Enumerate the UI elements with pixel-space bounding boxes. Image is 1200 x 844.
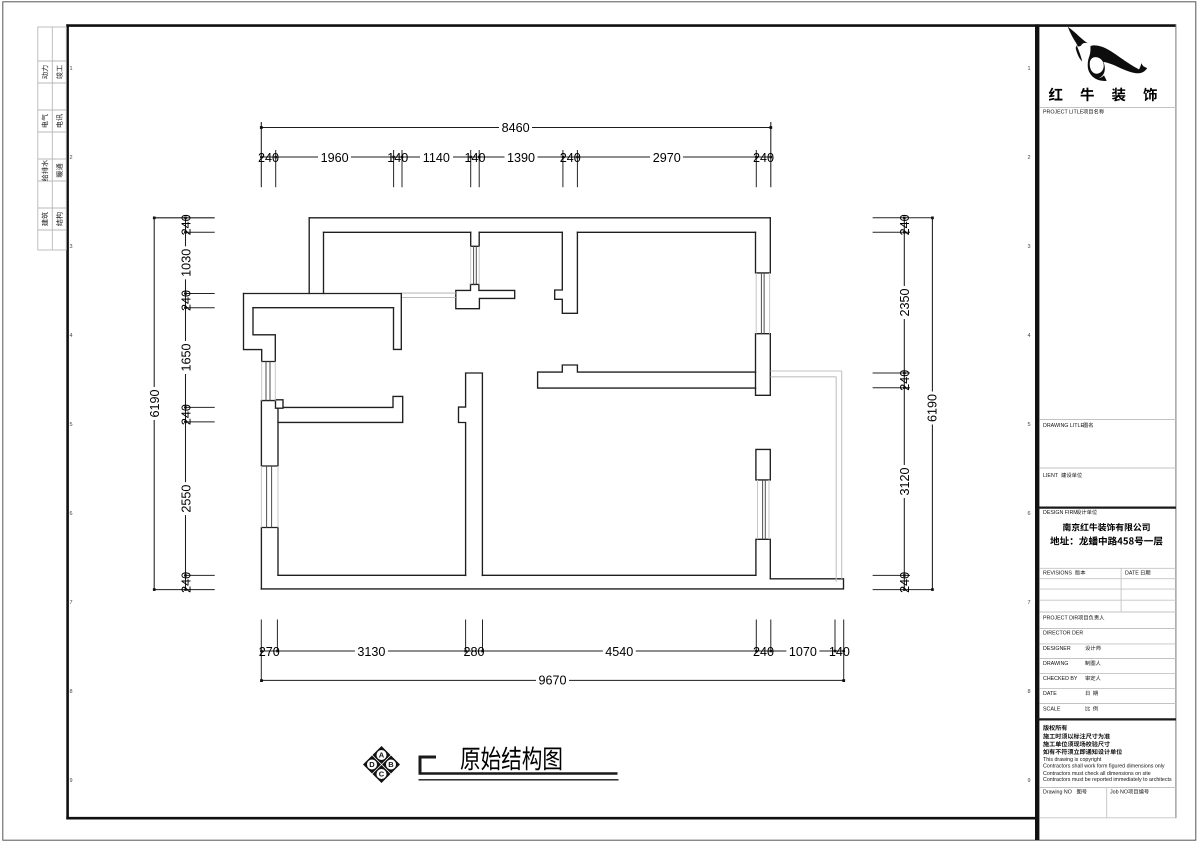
svg-text:1070: 1070 (789, 645, 817, 659)
svg-text:240: 240 (898, 370, 912, 391)
svg-text:REVISIONS: REVISIONS (1043, 571, 1072, 577)
svg-text:240: 240 (753, 151, 774, 165)
svg-text:CHECKED BY: CHECKED BY (1043, 676, 1078, 682)
svg-text:C: C (379, 770, 385, 779)
svg-text:4: 4 (70, 333, 73, 339)
svg-text:Job NO: Job NO (1110, 790, 1128, 796)
svg-text:240: 240 (179, 404, 193, 425)
svg-text:8460: 8460 (502, 121, 530, 135)
svg-text:280: 280 (463, 645, 484, 659)
svg-text:1140: 1140 (423, 151, 450, 165)
svg-text:Contractors must be reported i: Contractors must be reported immediately… (1043, 777, 1172, 783)
svg-text:9: 9 (1027, 778, 1030, 784)
svg-text:2350: 2350 (898, 288, 912, 316)
svg-text:6: 6 (70, 511, 73, 517)
svg-text:240: 240 (753, 645, 774, 659)
svg-text:6190: 6190 (148, 389, 162, 417)
svg-text:DRAWING: DRAWING (1043, 661, 1068, 667)
svg-text:3120: 3120 (898, 467, 912, 495)
svg-text:9670: 9670 (538, 674, 566, 688)
svg-text:PROJECT LITLE: PROJECT LITLE (1043, 110, 1084, 116)
svg-text:2: 2 (70, 155, 73, 161)
svg-text:270: 270 (259, 645, 280, 659)
svg-text:A: A (379, 751, 385, 760)
svg-text:1650: 1650 (179, 343, 193, 371)
svg-text:This drawing is copyright: This drawing is copyright (1043, 757, 1102, 763)
svg-text:2550: 2550 (179, 485, 193, 513)
svg-text:240: 240 (898, 572, 912, 593)
svg-text:6190: 6190 (926, 394, 940, 422)
svg-text:240: 240 (179, 572, 193, 593)
svg-text:9: 9 (70, 778, 73, 784)
svg-text:D: D (369, 760, 375, 769)
svg-text:2: 2 (1027, 155, 1030, 161)
svg-text:3130: 3130 (357, 645, 385, 659)
svg-text:2970: 2970 (653, 151, 681, 165)
svg-text:140: 140 (387, 151, 408, 165)
svg-text:DATE: DATE (1043, 691, 1057, 697)
svg-text:1: 1 (70, 66, 73, 72)
svg-text:1: 1 (1027, 66, 1030, 72)
svg-text:3: 3 (1027, 244, 1030, 250)
svg-text:1390: 1390 (507, 151, 535, 165)
svg-text:8: 8 (70, 689, 73, 695)
svg-text:8: 8 (1027, 689, 1030, 695)
svg-text:SCALE: SCALE (1043, 707, 1061, 713)
svg-text:140: 140 (829, 645, 850, 659)
svg-text:3: 3 (70, 244, 73, 250)
svg-text:LIENT: LIENT (1043, 473, 1059, 479)
svg-text:240: 240 (898, 214, 912, 235)
svg-text:DESIGN FIRM: DESIGN FIRM (1043, 510, 1078, 516)
svg-text:Drawing NO: Drawing NO (1043, 790, 1072, 796)
svg-text:B: B (388, 760, 394, 769)
svg-text:1960: 1960 (321, 151, 349, 165)
svg-text:240: 240 (560, 151, 581, 165)
svg-text:140: 140 (464, 151, 485, 165)
svg-text:DRAWING LITLE: DRAWING LITLE (1043, 423, 1084, 429)
svg-text:7: 7 (1027, 600, 1030, 606)
svg-text:240: 240 (179, 214, 193, 235)
svg-text:240: 240 (179, 290, 193, 311)
svg-text:Contractors shall work form fi: Contractors shall work form figured dime… (1043, 764, 1165, 770)
svg-text:1030: 1030 (179, 249, 193, 277)
svg-text:240: 240 (258, 151, 279, 165)
svg-text:PROJECT DIR: PROJECT DIR (1043, 616, 1078, 622)
svg-text:DESIGNER: DESIGNER (1043, 646, 1071, 652)
svg-text:DIRECTOR DER: DIRECTOR DER (1043, 631, 1083, 637)
svg-text:DATE: DATE (1125, 571, 1139, 577)
svg-text:5: 5 (70, 422, 73, 428)
svg-text:5: 5 (1027, 422, 1030, 428)
svg-text:7: 7 (70, 600, 73, 606)
svg-text:6: 6 (1027, 511, 1030, 517)
svg-text:4: 4 (1027, 333, 1030, 339)
svg-text:4540: 4540 (605, 645, 633, 659)
